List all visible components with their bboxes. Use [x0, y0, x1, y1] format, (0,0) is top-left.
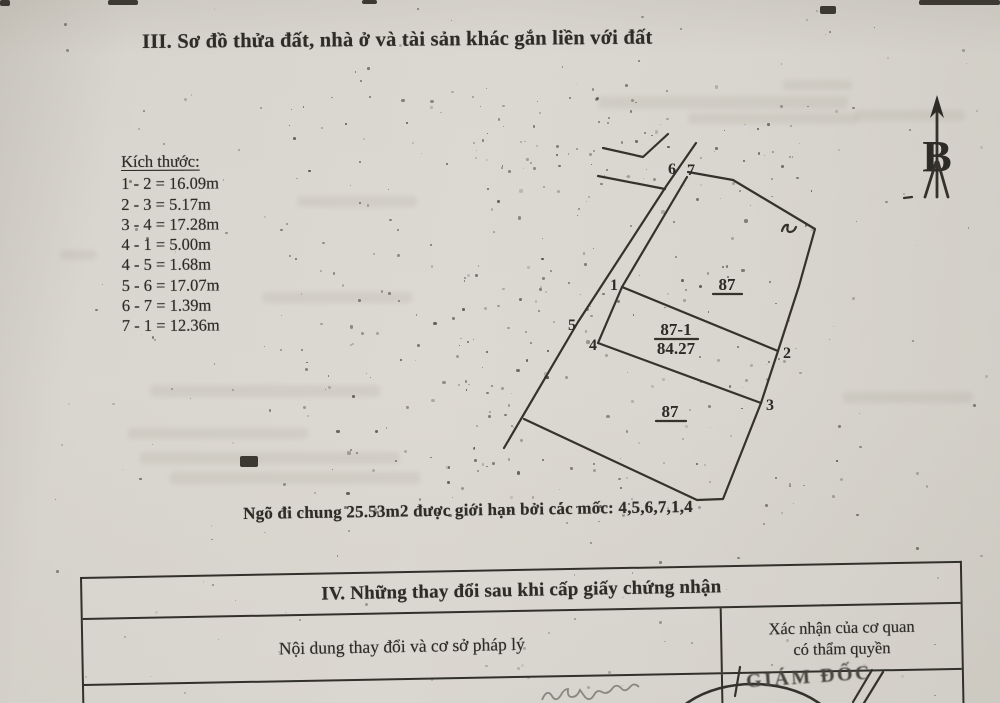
speckle [232, 442, 234, 444]
speckle [467, 274, 469, 276]
speckle [663, 462, 665, 464]
speckle [606, 415, 609, 418]
speckle [926, 485, 928, 487]
column-header-content: Nội dung thay đổi và cơ sở pháp lý [83, 608, 723, 684]
speckle [375, 430, 378, 433]
speckle [452, 497, 454, 499]
speckle [433, 322, 436, 325]
scanned-land-certificate-page: III. Sơ đồ thửa đất, nhà ở và tài sản kh… [0, 0, 1000, 703]
speckle [211, 525, 212, 526]
speckle [700, 381, 702, 383]
speckle [431, 399, 434, 402]
speckle [539, 288, 541, 290]
speckle [518, 216, 521, 219]
speckle [916, 547, 919, 550]
speckle [464, 277, 466, 279]
speckle [662, 378, 665, 381]
speckle [732, 182, 735, 185]
speckle [833, 326, 834, 327]
speckle [474, 459, 477, 462]
speckle [322, 242, 324, 244]
speckle [468, 384, 470, 386]
column-header-confirmation: Xác nhận của cơ quan có thẩm quyền [722, 604, 962, 672]
speckle [112, 403, 114, 405]
speckle [487, 188, 489, 190]
speckle [415, 360, 416, 361]
bleed-through-smudge [855, 110, 965, 121]
speckle [473, 447, 476, 450]
speckle [576, 148, 578, 150]
speckle [783, 360, 785, 362]
section-iii-title: III. Sơ đồ thửa đất, nhà ở và tài sản kh… [142, 27, 653, 54]
vertex-label-1: 1 [610, 277, 618, 294]
speckle [466, 389, 468, 391]
speckle [708, 311, 710, 313]
speckle [626, 430, 628, 432]
speckle [293, 137, 296, 140]
speckle [620, 487, 622, 489]
speckle [666, 90, 668, 92]
speckle [369, 96, 371, 98]
speckle [264, 216, 266, 218]
speckle [681, 279, 684, 282]
dimension-item: 4 - 1 = 5.00m [121, 235, 219, 256]
speckle [700, 184, 702, 186]
speckle [154, 339, 156, 341]
speckle [431, 265, 434, 268]
speckle [501, 387, 504, 390]
speckle [397, 254, 400, 257]
speckle [962, 49, 965, 52]
speckle [163, 143, 165, 145]
speckle [64, 23, 67, 26]
dimension-item: 2 - 3 = 5.17m [121, 194, 219, 215]
speckle [546, 376, 549, 379]
speckle [556, 145, 559, 148]
speckle [416, 314, 418, 316]
speckle [653, 178, 656, 181]
speckle [350, 185, 351, 186]
speckle [352, 343, 354, 345]
speckle [498, 118, 500, 120]
speckle [585, 330, 587, 332]
speckle [720, 198, 721, 199]
speckle [832, 495, 835, 498]
speckle [303, 406, 306, 409]
speckle [502, 105, 505, 108]
speckle [584, 263, 586, 265]
bleed-through-smudge [688, 113, 858, 124]
speckle [301, 349, 303, 351]
speckle [545, 291, 547, 293]
speckle [461, 487, 464, 490]
speckle [966, 63, 967, 64]
speckle [532, 496, 535, 499]
handwritten-mark [782, 225, 796, 232]
speckle [535, 300, 538, 303]
bleed-through-smudge [60, 250, 96, 260]
speckle [557, 190, 560, 193]
speckle [968, 227, 970, 229]
speckle [980, 555, 982, 557]
speckle [655, 130, 658, 133]
speckle [225, 232, 227, 234]
speckle [789, 320, 791, 322]
bleed-through-smudge [140, 452, 400, 464]
speckle [793, 503, 794, 504]
speckle [355, 71, 356, 72]
bleed-through-smudge [150, 385, 380, 397]
speckle [497, 200, 500, 203]
speckle [492, 462, 495, 465]
speckle [768, 361, 770, 363]
speckle [887, 57, 889, 59]
speckle [771, 178, 773, 180]
speckle [333, 272, 336, 275]
speckle [291, 109, 292, 110]
speckle [570, 467, 572, 469]
speckle [593, 248, 595, 250]
bleed-through-smudge [297, 196, 417, 207]
speckle [859, 413, 860, 414]
speckle [68, 403, 70, 405]
speckle [874, 27, 875, 28]
speckle [683, 299, 686, 302]
edge-4-3-line [598, 343, 761, 403]
speckle [775, 477, 777, 479]
speckle [550, 270, 552, 272]
speckle [386, 427, 388, 429]
speckle [781, 63, 782, 64]
speckle [303, 106, 304, 107]
speckle [916, 472, 919, 475]
speckle [280, 229, 283, 232]
speckle [789, 485, 791, 487]
scan-edge-mark [820, 6, 836, 14]
vertex-label-4: 4 [589, 337, 597, 354]
speckle [708, 405, 711, 408]
speckle [476, 150, 477, 151]
speckle [646, 169, 647, 170]
speckle [56, 570, 59, 573]
speckle [286, 223, 288, 225]
speckle [533, 167, 535, 169]
speckle [727, 276, 729, 278]
parcel-top-right-boundary-line [688, 172, 815, 351]
speckle [829, 339, 830, 340]
speckle [440, 112, 441, 113]
speckle [722, 266, 724, 268]
speckle [699, 285, 702, 288]
speckle [781, 512, 783, 514]
speckle [667, 293, 669, 295]
speckle [766, 378, 769, 381]
speckle [593, 463, 595, 465]
speckle [578, 208, 580, 210]
speckle [659, 561, 661, 563]
speckle [651, 135, 652, 136]
speckle [525, 331, 527, 333]
parcel-middle-area: 84.27 [657, 339, 696, 358]
bleed-through-smudge [782, 80, 852, 90]
speckle [729, 385, 732, 388]
speckle [838, 425, 841, 428]
speckle [741, 408, 742, 409]
speckle [586, 308, 589, 311]
speckle [558, 353, 559, 354]
speckle [448, 466, 450, 468]
speckle [591, 164, 592, 165]
dimension-item: 3 - 4 = 17.28m [121, 214, 219, 235]
speckle [699, 356, 701, 358]
speckle [486, 392, 488, 394]
speckle [487, 133, 488, 134]
speckle [264, 532, 265, 533]
speckle [577, 215, 578, 216]
speckle [446, 163, 448, 165]
speckle [707, 272, 710, 275]
alley-left-boundary-line [504, 143, 696, 448]
speckle [533, 125, 536, 128]
speckle [508, 170, 511, 173]
speckle [184, 98, 187, 101]
alley-note: Ngõ đi chung 25.53m2 được giới hạn bởi c… [243, 497, 693, 524]
speckle [305, 368, 308, 371]
speckle [482, 367, 483, 368]
speckle [336, 430, 339, 433]
speckle [482, 139, 484, 141]
speckle [388, 189, 389, 190]
speckle [641, 16, 643, 18]
speckle [816, 10, 818, 12]
scan-edge-mark [240, 456, 258, 467]
speckle [630, 110, 633, 113]
speckle [660, 124, 661, 125]
speckle [373, 253, 375, 255]
speckle [724, 130, 725, 131]
speckle [825, 34, 826, 35]
speckle [542, 277, 545, 280]
speckle [805, 224, 807, 226]
speckle [539, 112, 541, 114]
speckle [627, 372, 629, 374]
speckle [741, 269, 744, 272]
speckle [376, 332, 379, 335]
parcel-bottom-boundary-line [524, 403, 761, 500]
speckle [569, 97, 571, 99]
speckle [589, 153, 592, 156]
speckle [489, 411, 491, 413]
vertex-label-6: 6 [668, 161, 676, 178]
speckle [214, 8, 215, 9]
speckle [631, 400, 634, 403]
speckle [61, 444, 63, 446]
speckle [473, 142, 475, 144]
speckle [331, 97, 332, 98]
speckle [811, 190, 812, 191]
speckle [530, 342, 533, 345]
speckle [717, 359, 719, 361]
speckle [680, 28, 681, 29]
speckle [519, 298, 522, 301]
speckle [742, 387, 744, 389]
speckle [750, 364, 753, 367]
bleed-through-smudge [128, 428, 308, 439]
bleed-through-smudge [843, 392, 973, 403]
speckle [491, 208, 494, 211]
speckle [513, 427, 514, 428]
speckle [504, 414, 506, 416]
speckle [840, 478, 843, 481]
speckle [568, 282, 571, 285]
speckle [516, 369, 519, 372]
speckle [620, 458, 622, 460]
tick-mark [904, 197, 912, 198]
speckle [366, 373, 368, 375]
speckle [467, 341, 469, 343]
speckle [289, 255, 291, 257]
speckle [682, 438, 683, 439]
speckle [321, 127, 323, 129]
speckle [792, 156, 793, 157]
speckle [789, 156, 792, 159]
speckle [295, 258, 297, 260]
speckle [600, 183, 602, 185]
speckle [430, 100, 433, 103]
speckle [593, 469, 596, 472]
speckle [859, 446, 861, 448]
column-header-confirmation-line1: Xác nhận của cơ quan [768, 616, 915, 640]
speckle [430, 457, 432, 459]
speckle [775, 303, 777, 305]
speckle [223, 179, 225, 181]
speckle [558, 165, 560, 167]
speckle [389, 219, 391, 221]
speckle [472, 96, 474, 98]
speckle [370, 377, 372, 379]
scan-edge-mark [362, 0, 377, 4]
speckle [524, 141, 526, 143]
speckle [289, 125, 290, 126]
vertex-label-3: 3 [766, 397, 774, 414]
speckle [617, 300, 620, 303]
speckle [211, 539, 213, 541]
speckle [526, 359, 529, 362]
speckle [829, 31, 830, 32]
speckle [478, 265, 480, 267]
speckle [462, 308, 464, 310]
speckle [296, 178, 298, 180]
column-header-confirmation-line2: có thẩm quyền [793, 637, 891, 660]
speckle [980, 146, 983, 149]
speckle [903, 193, 905, 195]
speckle [667, 146, 669, 148]
speckle [806, 19, 808, 21]
speckle [482, 463, 485, 466]
speckle [639, 275, 640, 276]
speckle [480, 106, 482, 108]
speckle [66, 49, 69, 52]
speckle [673, 221, 675, 223]
speckle [764, 155, 765, 156]
north-arrow-tail [925, 162, 948, 197]
vertex-label-7: 7 [687, 162, 695, 179]
speckle [583, 252, 586, 255]
speckle [280, 349, 282, 351]
speckle [769, 281, 770, 282]
speckle [856, 221, 857, 222]
speckle [397, 229, 399, 231]
speckle [976, 110, 978, 112]
speckle [643, 178, 644, 179]
speckle [745, 379, 748, 382]
speckle [625, 84, 628, 87]
speckle [608, 117, 610, 119]
speckle [346, 492, 349, 495]
alley-right-boundary-line [598, 177, 687, 343]
speckle [503, 126, 504, 127]
speckle [190, 398, 191, 399]
speckle [350, 449, 352, 451]
speckle [511, 393, 512, 394]
speckle [621, 141, 623, 143]
speckle [635, 140, 638, 143]
speckle [580, 294, 581, 295]
speckle [527, 266, 529, 268]
speckle [361, 332, 364, 335]
speckle [520, 439, 523, 442]
speckle [502, 288, 505, 291]
speckle [464, 280, 465, 281]
speckle [750, 205, 751, 206]
speckle [651, 385, 654, 388]
speckle [281, 315, 282, 316]
speckle [452, 317, 455, 320]
speckle [541, 258, 543, 260]
speckle [799, 372, 802, 375]
speckle [501, 167, 503, 169]
speckle [421, 153, 422, 154]
speckle [122, 469, 123, 470]
speckle [493, 231, 495, 233]
speckle [486, 88, 487, 89]
speckle [912, 340, 914, 342]
speckle [55, 499, 56, 500]
speckle [664, 307, 666, 309]
speckle [530, 162, 532, 164]
vertex-label-5: 5 [568, 317, 576, 334]
speckle [191, 94, 192, 95]
speckle [542, 459, 544, 461]
speckle [633, 314, 635, 316]
speckle [502, 165, 504, 167]
speckle [475, 274, 478, 277]
speckle [737, 346, 739, 348]
edge-1-2-line [622, 287, 778, 351]
speckle [795, 348, 797, 350]
speckle [799, 143, 801, 145]
speckle [598, 121, 599, 122]
speckle [609, 316, 611, 318]
speckle [565, 376, 568, 379]
speckle [556, 154, 558, 156]
edge-2-3-line [761, 351, 778, 403]
speckle [811, 229, 813, 231]
speckle [731, 237, 734, 240]
speckle [593, 150, 595, 152]
speckle [852, 297, 855, 300]
speckle [586, 201, 587, 202]
